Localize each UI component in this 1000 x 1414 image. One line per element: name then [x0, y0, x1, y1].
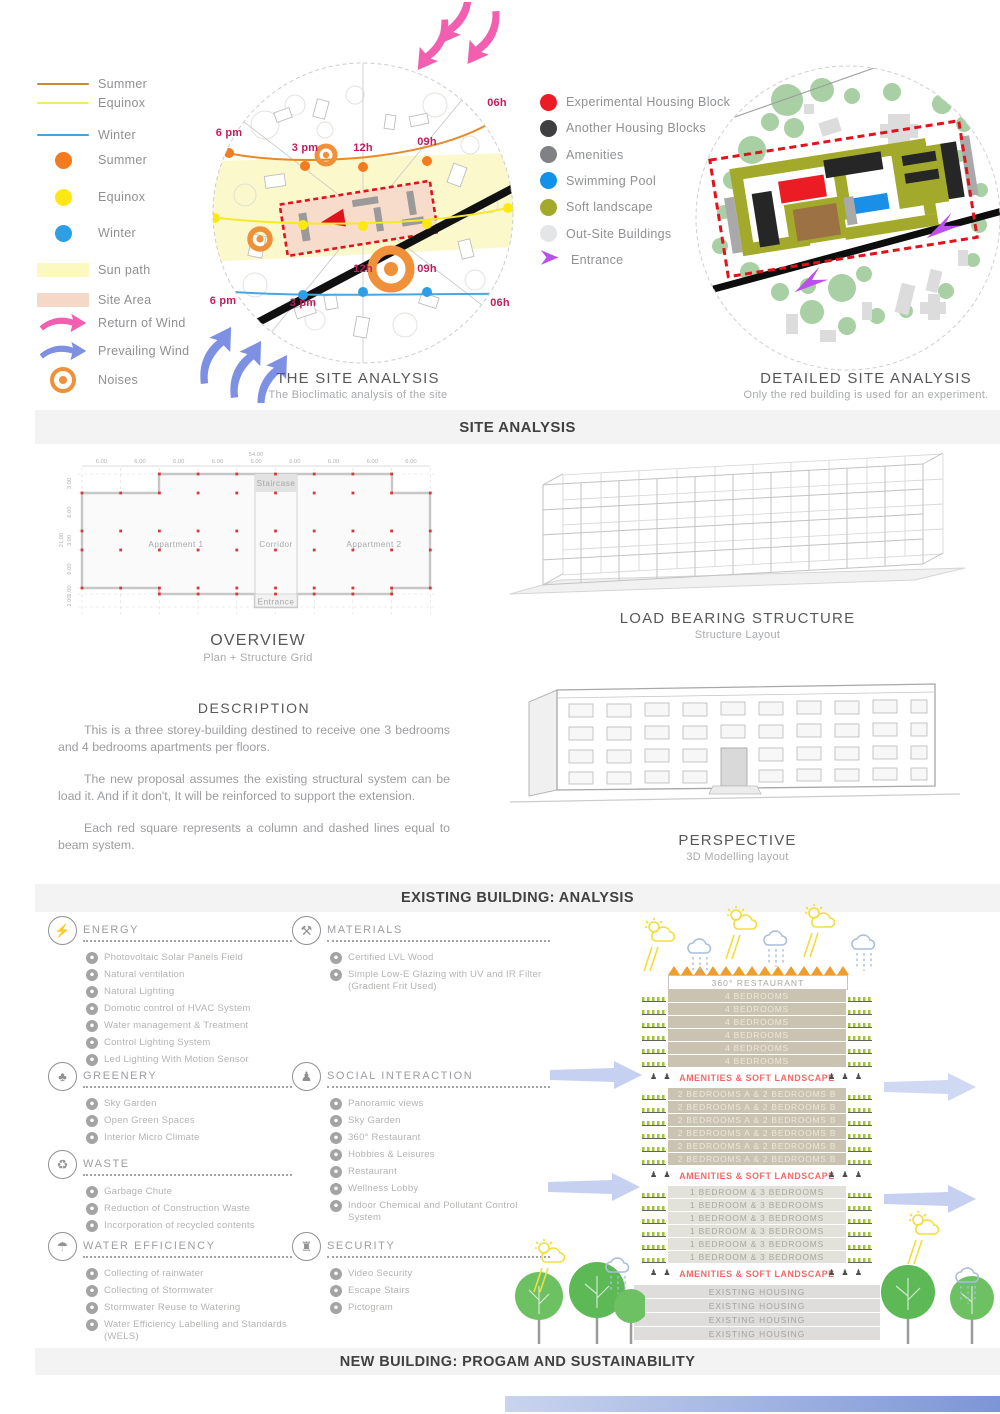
- noises-ring: [36, 367, 90, 393]
- balcony-planting-left: [642, 1258, 666, 1263]
- description-paragraph-3: Each red square represents a column and …: [58, 820, 450, 853]
- floor-row: 1 BEDROOM & 3 BEDROOMS: [642, 1251, 872, 1264]
- list-item: Collecting of rainwater: [86, 1268, 292, 1280]
- floor-label: 4 BEDROOMS: [668, 1055, 846, 1067]
- category-water-efficiency: ☂WATER EFFICIENCYCollecting of rainwater…: [48, 1232, 292, 1347]
- band-new-building: NEW BUILDING: PROGAM AND SUSTAINABILITY: [35, 1348, 1000, 1375]
- legend-label: Site Area: [98, 293, 151, 307]
- floor-label: 1 BEDROOM & 3 BEDROOMS: [668, 1212, 846, 1224]
- description-body: This is a three storey-building destined…: [58, 722, 450, 869]
- rain-cloud-icon: [846, 927, 882, 978]
- dimension-label: 6.00: [251, 459, 262, 465]
- detailed-subtitle: Only the red building is used for an exp…: [716, 389, 1000, 401]
- list-item: Simple Low-E Glazing with UV and IR Filt…: [330, 969, 550, 992]
- balcony-planting-right: [848, 1049, 872, 1054]
- room-label-apartment1: Appartment 1: [148, 540, 203, 549]
- item-label: Simple Low-E Glazing with UV and IR Filt…: [348, 969, 550, 992]
- people-silhouettes: ♟ ♟: [650, 1170, 673, 1179]
- legend-label: Another Housing Blocks: [566, 121, 706, 135]
- balcony-planting-left: [642, 1232, 666, 1237]
- entrance-door: [721, 748, 747, 786]
- item-label: Interior Micro Climate: [104, 1132, 200, 1144]
- people-icon: ♟: [292, 1062, 321, 1091]
- legend-label: Winter: [98, 226, 136, 240]
- band-site-analysis-label: SITE ANALYSIS: [459, 419, 576, 436]
- sun-time-top-0: 6 pm: [207, 127, 251, 139]
- item-icon: [86, 1037, 98, 1049]
- perspective-title: PERSPECTIVE: [565, 832, 910, 849]
- floor-row: 2 BEDROOMS A & 2 BEDROOMS B: [642, 1114, 872, 1127]
- category-title: GREENERY: [83, 1070, 157, 1082]
- item-label: Pictogram: [348, 1302, 393, 1314]
- balcony-planting-right: [848, 1108, 872, 1113]
- list-item: Sky Garden: [330, 1115, 550, 1127]
- floor-plan: 6.006.006.006.006.006.006.006.006.0054.0…: [58, 452, 458, 630]
- list-item: Water Efficiency Labelling and Standards…: [86, 1319, 292, 1342]
- floor-label: 1 BEDROOM & 3 BEDROOMS: [668, 1225, 846, 1237]
- legend-item-swimming-pool: Swimming Pool: [540, 171, 656, 191]
- rain-cloud-icon: [950, 1260, 986, 1311]
- floor-label: 1 BEDROOM & 3 BEDROOMS: [668, 1238, 846, 1250]
- legend-item-prevailing-wind: Prevailing Wind: [36, 341, 189, 361]
- item-label: Control Lighting System: [104, 1037, 210, 1049]
- sun-cloud-icon: [902, 1210, 948, 1273]
- floor-row: 1 BEDROOM & 3 BEDROOMS: [642, 1238, 872, 1251]
- item-label: Water Efficiency Labelling and Standards…: [104, 1319, 292, 1342]
- list-item: Interior Micro Climate: [86, 1132, 292, 1144]
- load-bearing-title: LOAD BEARING STRUCTURE: [545, 610, 930, 627]
- floor-label: 2 BEDROOMS A & 2 BEDROOMS B: [668, 1153, 846, 1165]
- item-label: Video Security: [348, 1268, 413, 1280]
- category-items: Collecting of rainwaterCollecting of Sto…: [86, 1268, 292, 1342]
- item-icon: [330, 1132, 342, 1144]
- legend-label: Summer: [98, 153, 147, 167]
- dimension-label: 21.00: [59, 533, 65, 548]
- dimension-label: 6.00: [67, 563, 73, 574]
- perspective-caption: PERSPECTIVE 3D Modelling layout: [565, 832, 910, 863]
- balcony-planting-left: [642, 1147, 666, 1152]
- detailed-caption: DETAILED SITE ANALYSIS Only the red buil…: [716, 370, 1000, 401]
- dimension-label: 6.00: [212, 459, 223, 465]
- balcony-planting-right: [848, 1134, 872, 1139]
- bioclimatic-subtitle: The Bioclimatic analysis of the site: [253, 389, 463, 401]
- list-item: 360° Restaurant: [330, 1132, 550, 1144]
- category-title: WATER EFFICIENCY: [83, 1240, 216, 1252]
- category-greenery: ♣GREENERYSky GardenOpen Green SpacesInte…: [48, 1062, 292, 1149]
- item-label: Photovoltaic Solar Panels Field: [104, 952, 243, 964]
- item-icon: [86, 1098, 98, 1110]
- floor-row: 2 BEDROOMS A & 2 BEDROOMS B: [642, 1127, 872, 1140]
- item-icon: [86, 1203, 98, 1215]
- balcony-planting-left: [642, 1095, 666, 1100]
- list-item: Control Lighting System: [86, 1037, 292, 1049]
- amenities-dot: [540, 146, 557, 163]
- item-icon: [330, 952, 342, 964]
- water-drops-icon: ☂: [48, 1232, 77, 1261]
- entrance-arrow-icon: [540, 249, 562, 271]
- return-wind-arrow: [36, 312, 90, 334]
- roof-label: 360° RESTAURANT: [712, 978, 805, 988]
- dimension-label: 6.00: [289, 459, 300, 465]
- legend-label: Noises: [98, 373, 138, 387]
- list-item: Reduction of Construction Waste: [86, 1203, 292, 1215]
- item-label: Natural Lighting: [104, 986, 174, 998]
- balcony-planting-right: [848, 1095, 872, 1100]
- balcony-planting-left: [642, 1036, 666, 1041]
- item-label: Indoor Chemical and Pollutant Control Sy…: [348, 1200, 550, 1223]
- floor-row: 1 BEDROOM & 3 BEDROOMS: [642, 1225, 872, 1238]
- detailed-site-map: [692, 62, 1000, 374]
- item-icon: [86, 1319, 98, 1331]
- item-icon: [86, 969, 98, 981]
- legend-item-winter: Winter: [36, 125, 136, 145]
- list-item: Sky Garden: [86, 1098, 292, 1110]
- band-new-building-label: NEW BUILDING: PROGAM AND SUSTAINABILITY: [340, 1354, 696, 1370]
- sun-time-bottom-4: 06h: [478, 297, 522, 309]
- floor-label: 4 BEDROOMS: [668, 1029, 846, 1041]
- legend-item-equinox: Equinox: [36, 93, 145, 113]
- legend-label: Swimming Pool: [566, 174, 656, 188]
- item-icon: [86, 1132, 98, 1144]
- balcony-planting-right: [848, 1206, 872, 1211]
- item-icon: [330, 1115, 342, 1127]
- legend-label: Amenities: [566, 148, 624, 162]
- legend-item-entrance: Entrance: [540, 250, 623, 270]
- item-label: 360° Restaurant: [348, 1132, 420, 1144]
- balcony-planting-left: [642, 1010, 666, 1015]
- dimension-label: 6.00: [96, 459, 107, 465]
- sun-cloud-icon: [798, 903, 844, 966]
- legend-item-winter: Winter: [36, 223, 136, 243]
- flow-arrow-right-2: [884, 1072, 978, 1104]
- floor-row: 1 BEDROOM & 3 BEDROOMS: [642, 1199, 872, 1212]
- item-label: Incorporation of recycled contents: [104, 1220, 255, 1232]
- amenity-label: AMENITIES & SOFT LANDSCAPE: [679, 1171, 834, 1181]
- category-items: Garbage ChuteReduction of Construction W…: [86, 1186, 292, 1232]
- dimension-label: 3.00: [67, 535, 73, 546]
- category-title: WASTE: [83, 1158, 130, 1170]
- balcony-planting-left: [642, 1219, 666, 1224]
- balcony-planting-left: [642, 1023, 666, 1028]
- list-item: Certified LVL Wood: [330, 952, 550, 964]
- legend-item-site-area: Site Area: [36, 290, 151, 310]
- balcony-planting-right: [848, 1062, 872, 1067]
- legend-label: Winter: [98, 128, 136, 142]
- floor-row: 2 BEDROOMS A & 2 BEDROOMS B: [642, 1088, 872, 1101]
- list-item: Wellness Lobby: [330, 1183, 550, 1195]
- item-icon: [86, 1115, 98, 1127]
- dimension-label: 54.00: [249, 452, 264, 458]
- balcony-planting-left: [642, 1160, 666, 1165]
- list-item: Photovoltaic Solar Panels Field: [86, 952, 292, 964]
- recycle-icon: ♻: [48, 1150, 77, 1179]
- rain-cloud-icon: [600, 1250, 636, 1301]
- wind-arrow-glyph: [38, 340, 88, 362]
- floor-plan-drawing: 6.006.006.006.006.006.006.006.006.0054.0…: [58, 452, 458, 630]
- equinox-line: [36, 102, 90, 105]
- out-site-buildings-dot: [540, 225, 557, 242]
- flow-arrow-left-2: [548, 1172, 642, 1204]
- category-title: SOCIAL INTERACTION: [327, 1070, 473, 1082]
- floor-row: 2 BEDROOMS A & 2 BEDROOMS B: [642, 1140, 872, 1153]
- floor-row: 2 BEDROOMS A & 2 BEDROOMS B: [642, 1153, 872, 1166]
- people-silhouettes: ♟ ♟: [650, 1268, 673, 1277]
- legend-item-summer: Summer: [36, 74, 147, 94]
- equinox-sun-dot: [36, 189, 90, 206]
- floor-label: 2 BEDROOMS A & 2 BEDROOMS B: [668, 1114, 846, 1126]
- item-label: Water management & Treatment: [104, 1020, 248, 1032]
- balcony-planting-left: [642, 1206, 666, 1211]
- perspective-drawing: [495, 662, 975, 827]
- sun-path-swatch: [36, 263, 90, 277]
- band-existing-building-label: EXISTING BUILDING: ANALYSIS: [401, 890, 634, 906]
- item-label: Restaurant: [348, 1166, 397, 1178]
- floor-row: 4 BEDROOMS: [642, 1003, 872, 1016]
- floor-row: 4 BEDROOMS: [642, 1016, 872, 1029]
- winter-line: [36, 134, 90, 137]
- umbrella-icon: [798, 966, 810, 975]
- category-social-interaction: ♟SOCIAL INTERACTIONPanoramic viewsSky Ga…: [292, 1062, 550, 1228]
- item-icon: [86, 1285, 98, 1297]
- perspective-subtitle: 3D Modelling layout: [565, 851, 910, 863]
- category-energy: ⚡ENERGYPhotovoltaic Solar Panels FieldNa…: [48, 916, 292, 1071]
- category-items: Sky GardenOpen Green SpacesInterior Micr…: [86, 1098, 292, 1144]
- legend-label: Out-Site Buildings: [566, 227, 671, 241]
- item-label: Wellness Lobby: [348, 1183, 418, 1195]
- item-icon: [330, 1268, 342, 1280]
- item-label: Sky Garden: [104, 1098, 157, 1110]
- list-item: Restaurant: [330, 1166, 550, 1178]
- dimension-label: 3.00: [67, 478, 73, 489]
- description-paragraph-1: This is a three storey-building destined…: [58, 722, 450, 755]
- balcony-planting-left: [642, 1121, 666, 1126]
- item-label: Open Green Spaces: [104, 1115, 195, 1127]
- floor-label: 1 BEDROOM & 3 BEDROOMS: [668, 1199, 846, 1211]
- existing-floor-row: EXISTING HOUSING: [634, 1327, 880, 1340]
- people-silhouettes: ♟ ♟ ♟: [828, 1268, 864, 1277]
- list-item: Hobbies & Leisures: [330, 1149, 550, 1161]
- existing-floor-row: EXISTING HOUSING: [634, 1285, 880, 1298]
- balcony-planting-right: [848, 1245, 872, 1250]
- amenity-building: [793, 203, 841, 241]
- floor-row: 4 BEDROOMS: [642, 990, 872, 1003]
- list-item: Stormwater Reuse to Watering: [86, 1302, 292, 1314]
- tools-icon: ⚒: [292, 916, 321, 945]
- footer-accent-bar: [505, 1396, 1000, 1412]
- room-label-apartment2: Appartment 2: [346, 540, 401, 549]
- item-icon: [86, 1220, 98, 1232]
- legend-label: Return of Wind: [98, 316, 186, 330]
- umbrella-icon: [811, 966, 823, 975]
- legend-label: Prevailing Wind: [98, 344, 189, 358]
- item-icon: [86, 1020, 98, 1032]
- item-label: Garbage Chute: [104, 1186, 172, 1198]
- dimension-label: 6.00: [328, 459, 339, 465]
- balcony-planting-left: [642, 1062, 666, 1067]
- balcony-planting-right: [848, 997, 872, 1002]
- item-icon: [330, 1200, 342, 1212]
- dimension-label: 6.00: [134, 459, 145, 465]
- item-icon: [86, 1186, 98, 1198]
- item-icon: [86, 952, 98, 964]
- legend-item-amenities: Amenities: [540, 145, 624, 165]
- item-icon: [330, 969, 342, 981]
- stack-rows: 360° RESTAURANT4 BEDROOMS4 BEDROOMS4 BED…: [630, 975, 892, 1340]
- band-site-analysis: SITE ANALYSIS: [35, 410, 1000, 444]
- amenity-row: AMENITIES & SOFT LANDSCAPE♟ ♟♟ ♟ ♟: [642, 1166, 872, 1186]
- list-item: Natural ventilation: [86, 969, 292, 981]
- overview-caption: OVERVIEW Plan + Structure Grid: [98, 632, 418, 664]
- architecture-poster: SummerEquinoxWinterSummerEquinoxWinterSu…: [0, 0, 1000, 1414]
- new-building-stack: 360° RESTAURANT4 BEDROOMS4 BEDROOMS4 BED…: [630, 903, 892, 1340]
- another-housing-blocks-dot: [540, 120, 557, 137]
- floor-label: 1 BEDROOM & 3 BEDROOMS: [668, 1186, 846, 1198]
- item-icon: [330, 1098, 342, 1110]
- bulb-icon: ⚡: [48, 916, 77, 945]
- room-label-corridor: Corridor: [259, 540, 293, 549]
- people-silhouettes: ♟ ♟ ♟: [828, 1170, 864, 1179]
- item-label: Collecting of Stormwater: [104, 1285, 213, 1297]
- description-title: DESCRIPTION: [58, 700, 450, 716]
- amenity-label: AMENITIES & SOFT LANDSCAPE: [679, 1073, 834, 1083]
- floor-label: 4 BEDROOMS: [668, 1003, 846, 1015]
- item-label: Sky Garden: [348, 1115, 401, 1127]
- balcony-planting-left: [642, 997, 666, 1002]
- flow-arrow-left-1: [550, 1060, 644, 1092]
- item-label: Natural ventilation: [104, 969, 185, 981]
- legend-item-summer: Summer: [36, 150, 147, 170]
- floor-row: 4 BEDROOMS: [642, 1029, 872, 1042]
- sun-cloud-icon: [528, 1238, 574, 1301]
- summer-line: [36, 83, 90, 86]
- wind-arrow-glyph: [38, 312, 88, 334]
- sun-time-bottom-3: 09h: [405, 263, 449, 275]
- category-title: MATERIALS: [327, 924, 403, 936]
- load-bearing-caption: LOAD BEARING STRUCTURE Structure Layout: [545, 610, 930, 641]
- sun-time-bottom-2: 12h: [341, 263, 385, 275]
- category-items: Panoramic viewsSky Garden360° Restaurant…: [330, 1098, 550, 1223]
- list-item: Garbage Chute: [86, 1186, 292, 1198]
- floor-row: 4 BEDROOMS: [642, 1042, 872, 1055]
- item-icon: [86, 1302, 98, 1314]
- legend-item-sun-path: Sun path: [36, 260, 150, 280]
- balcony-planting-right: [848, 1219, 872, 1224]
- list-item: Panoramic views: [330, 1098, 550, 1110]
- legend-item-another-housing-blocks: Another Housing Blocks: [540, 118, 706, 138]
- room-label-staircase: Staircase: [257, 479, 296, 488]
- category-items: Certified LVL WoodSimple Low-E Glazing w…: [330, 952, 550, 992]
- rain-cloud-icon: [758, 923, 794, 974]
- existing-floor-row: EXISTING HOUSING: [634, 1299, 880, 1312]
- floor-label: EXISTING HOUSING: [709, 1315, 806, 1325]
- legend-label: Equinox: [98, 96, 145, 110]
- roof-restaurant-row: 360° RESTAURANT: [668, 975, 848, 990]
- item-icon: [330, 1183, 342, 1195]
- people-silhouettes: ♟ ♟ ♟: [828, 1072, 864, 1081]
- balcony-planting-right: [848, 1147, 872, 1152]
- item-label: Hobbies & Leisures: [348, 1149, 435, 1161]
- list-item: Water management & Treatment: [86, 1020, 292, 1032]
- legend-label: Equinox: [98, 190, 145, 204]
- item-icon: [330, 1166, 342, 1178]
- floor-label: 2 BEDROOMS A & 2 BEDROOMS B: [668, 1088, 846, 1100]
- load-bearing-structure-drawing: [495, 448, 985, 608]
- floor-label: 2 BEDROOMS A & 2 BEDROOMS B: [668, 1127, 846, 1139]
- balcony-planting-left: [642, 1108, 666, 1113]
- item-label: Reduction of Construction Waste: [104, 1203, 250, 1215]
- floor-row: 4 BEDROOMS: [642, 1055, 872, 1068]
- floor-label: EXISTING HOUSING: [709, 1301, 806, 1311]
- list-item: Natural Lighting: [86, 986, 292, 998]
- bioclimatic-title: THE SITE ANALYSIS: [253, 370, 463, 387]
- item-icon: [86, 1268, 98, 1280]
- weather-icons: [630, 903, 892, 965]
- list-item: Incorporation of recycled contents: [86, 1220, 292, 1232]
- list-item: Indoor Chemical and Pollutant Control Sy…: [330, 1200, 550, 1223]
- balcony-planting-right: [848, 1010, 872, 1015]
- balcony-planting-right: [848, 1023, 872, 1028]
- item-icon: [330, 1302, 342, 1314]
- category-items: Photovoltaic Solar Panels FieldNatural v…: [86, 952, 292, 1066]
- overview-title: OVERVIEW: [98, 632, 418, 650]
- category-waste: ♻WASTEGarbage ChuteReduction of Construc…: [48, 1150, 292, 1237]
- floor-label: EXISTING HOUSING: [709, 1287, 806, 1297]
- experimental-housing-block-dot: [540, 94, 557, 111]
- description-paragraph-2: The new proposal assumes the existing st…: [58, 771, 450, 804]
- legend-item-equinox: Equinox: [36, 187, 145, 207]
- item-icon: [330, 1149, 342, 1161]
- dimension-label: 2.00: [67, 595, 73, 606]
- existing-floor-row: EXISTING HOUSING: [634, 1313, 880, 1326]
- item-label: Certified LVL Wood: [348, 952, 434, 964]
- item-icon: [330, 1285, 342, 1297]
- balcony-planting-left: [642, 1193, 666, 1198]
- dimension-label: 6.00: [67, 506, 73, 517]
- floor-label: 4 BEDROOMS: [668, 1042, 846, 1054]
- balcony-planting-right: [848, 1193, 872, 1198]
- balcony-planting-left: [642, 1134, 666, 1139]
- category-title: SECURITY: [327, 1240, 395, 1252]
- item-label: Stormwater Reuse to Watering: [104, 1302, 240, 1314]
- item-icon: [86, 986, 98, 998]
- soft-landscape-dot: [540, 199, 557, 216]
- bioclimatic-caption: THE SITE ANALYSIS The Bioclimatic analys…: [253, 370, 463, 401]
- amenity-row: AMENITIES & SOFT LANDSCAPE♟ ♟♟ ♟ ♟: [642, 1264, 872, 1284]
- balcony-planting-left: [642, 1049, 666, 1054]
- floor-label: 2 BEDROOMS A & 2 BEDROOMS B: [668, 1101, 846, 1113]
- return-of-wind-arrows: [392, 2, 517, 107]
- dimension-label: 6.00: [405, 459, 416, 465]
- sun-time-top-3: 09h: [405, 136, 449, 148]
- trees-icon: ♣: [48, 1062, 77, 1091]
- item-icon: [86, 1003, 98, 1015]
- summer-sun-dot: [36, 152, 90, 169]
- balcony-planting-right: [848, 1121, 872, 1126]
- floor-label: EXISTING HOUSING: [709, 1329, 806, 1339]
- category-materials: ⚒MATERIALSCertified LVL WoodSimple Low-E…: [292, 916, 550, 997]
- item-label: Domotic control of HVAC System: [104, 1003, 251, 1015]
- floor-label: 1 BEDROOM & 3 BEDROOMS: [668, 1251, 846, 1263]
- umbrella-icon: [824, 966, 836, 975]
- swimming-pool-dot: [540, 172, 557, 189]
- legend-item-return-of-wind: Return of Wind: [36, 313, 186, 333]
- amenity-label: AMENITIES & SOFT LANDSCAPE: [679, 1269, 834, 1279]
- floor-row: 1 BEDROOM & 3 BEDROOMS: [642, 1212, 872, 1225]
- amenity-row: AMENITIES & SOFT LANDSCAPE♟ ♟♟ ♟ ♟: [642, 1068, 872, 1088]
- detailed-title: DETAILED SITE ANALYSIS: [716, 370, 1000, 387]
- dimension-label: 1.00: [67, 585, 73, 596]
- list-item: Collecting of Stormwater: [86, 1285, 292, 1297]
